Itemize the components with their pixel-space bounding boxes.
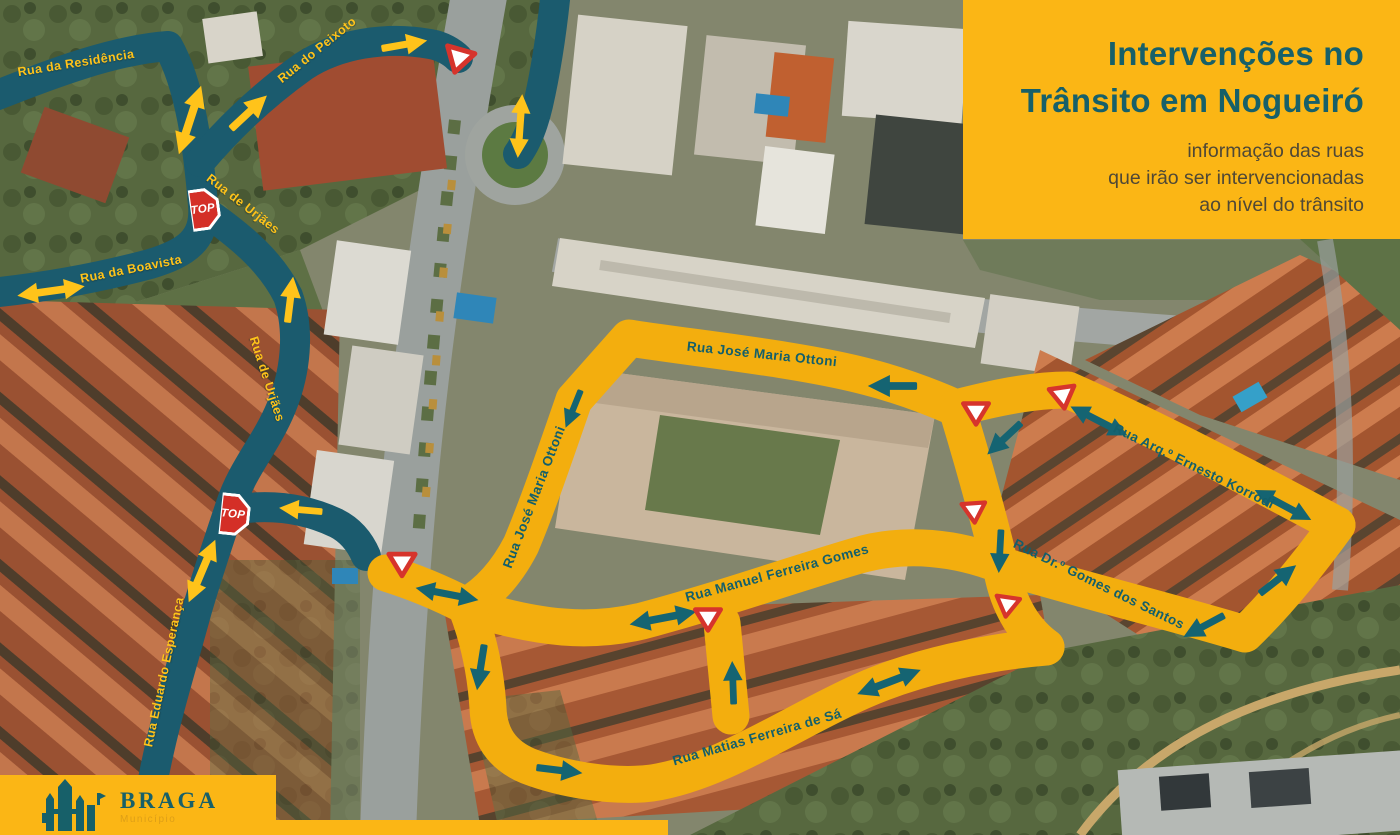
poster-subtitle-line3: ao nível do trânsito <box>983 192 1364 219</box>
title-panel: Intervenções no Trânsito em Nogueiró inf… <box>963 0 1400 239</box>
yield-sign-icon <box>991 593 1022 622</box>
traffic-intervention-poster: Rua da Residência Rua do Peixoto Rua de … <box>0 0 1400 835</box>
braga-castle-icon <box>42 779 106 831</box>
footer-strip <box>276 820 668 835</box>
yield-sign-icon <box>386 551 418 579</box>
yield-sign-icon <box>1046 383 1079 414</box>
poster-title-line2: Trânsito em Nogueiró <box>983 77 1364 124</box>
poster-title-line1: Intervenções no <box>983 30 1364 77</box>
yield-sign-icon <box>961 401 991 428</box>
yield-sign-icon <box>693 607 723 634</box>
yield-sign-icon <box>959 500 989 527</box>
poster-subtitle-line1: informação das ruas <box>983 138 1364 165</box>
braga-logo-subtitle: Município <box>120 814 218 825</box>
braga-logo-wordmark: BRAGA <box>120 789 218 813</box>
poster-subtitle-line2: que irão ser intervencionadas <box>983 165 1364 192</box>
braga-logo-panel: BRAGA Município <box>0 775 276 835</box>
